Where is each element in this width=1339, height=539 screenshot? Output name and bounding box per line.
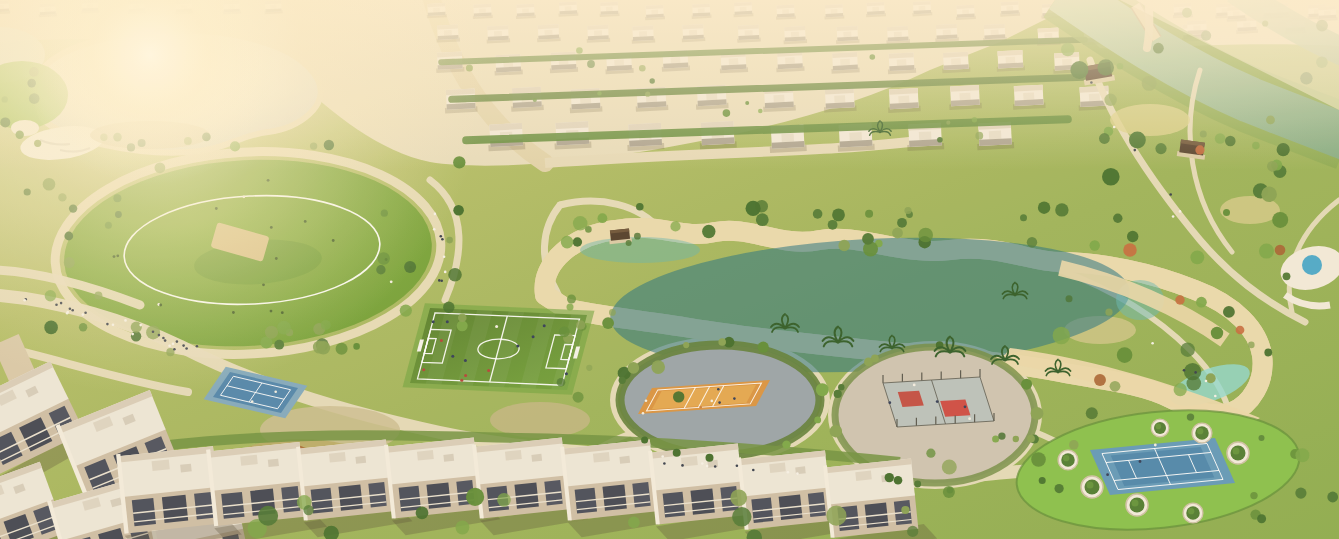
aerial-community-render: Sunlit aerial rendering of a master-plan… — [0, 0, 1339, 539]
sun-glare — [0, 0, 1339, 539]
